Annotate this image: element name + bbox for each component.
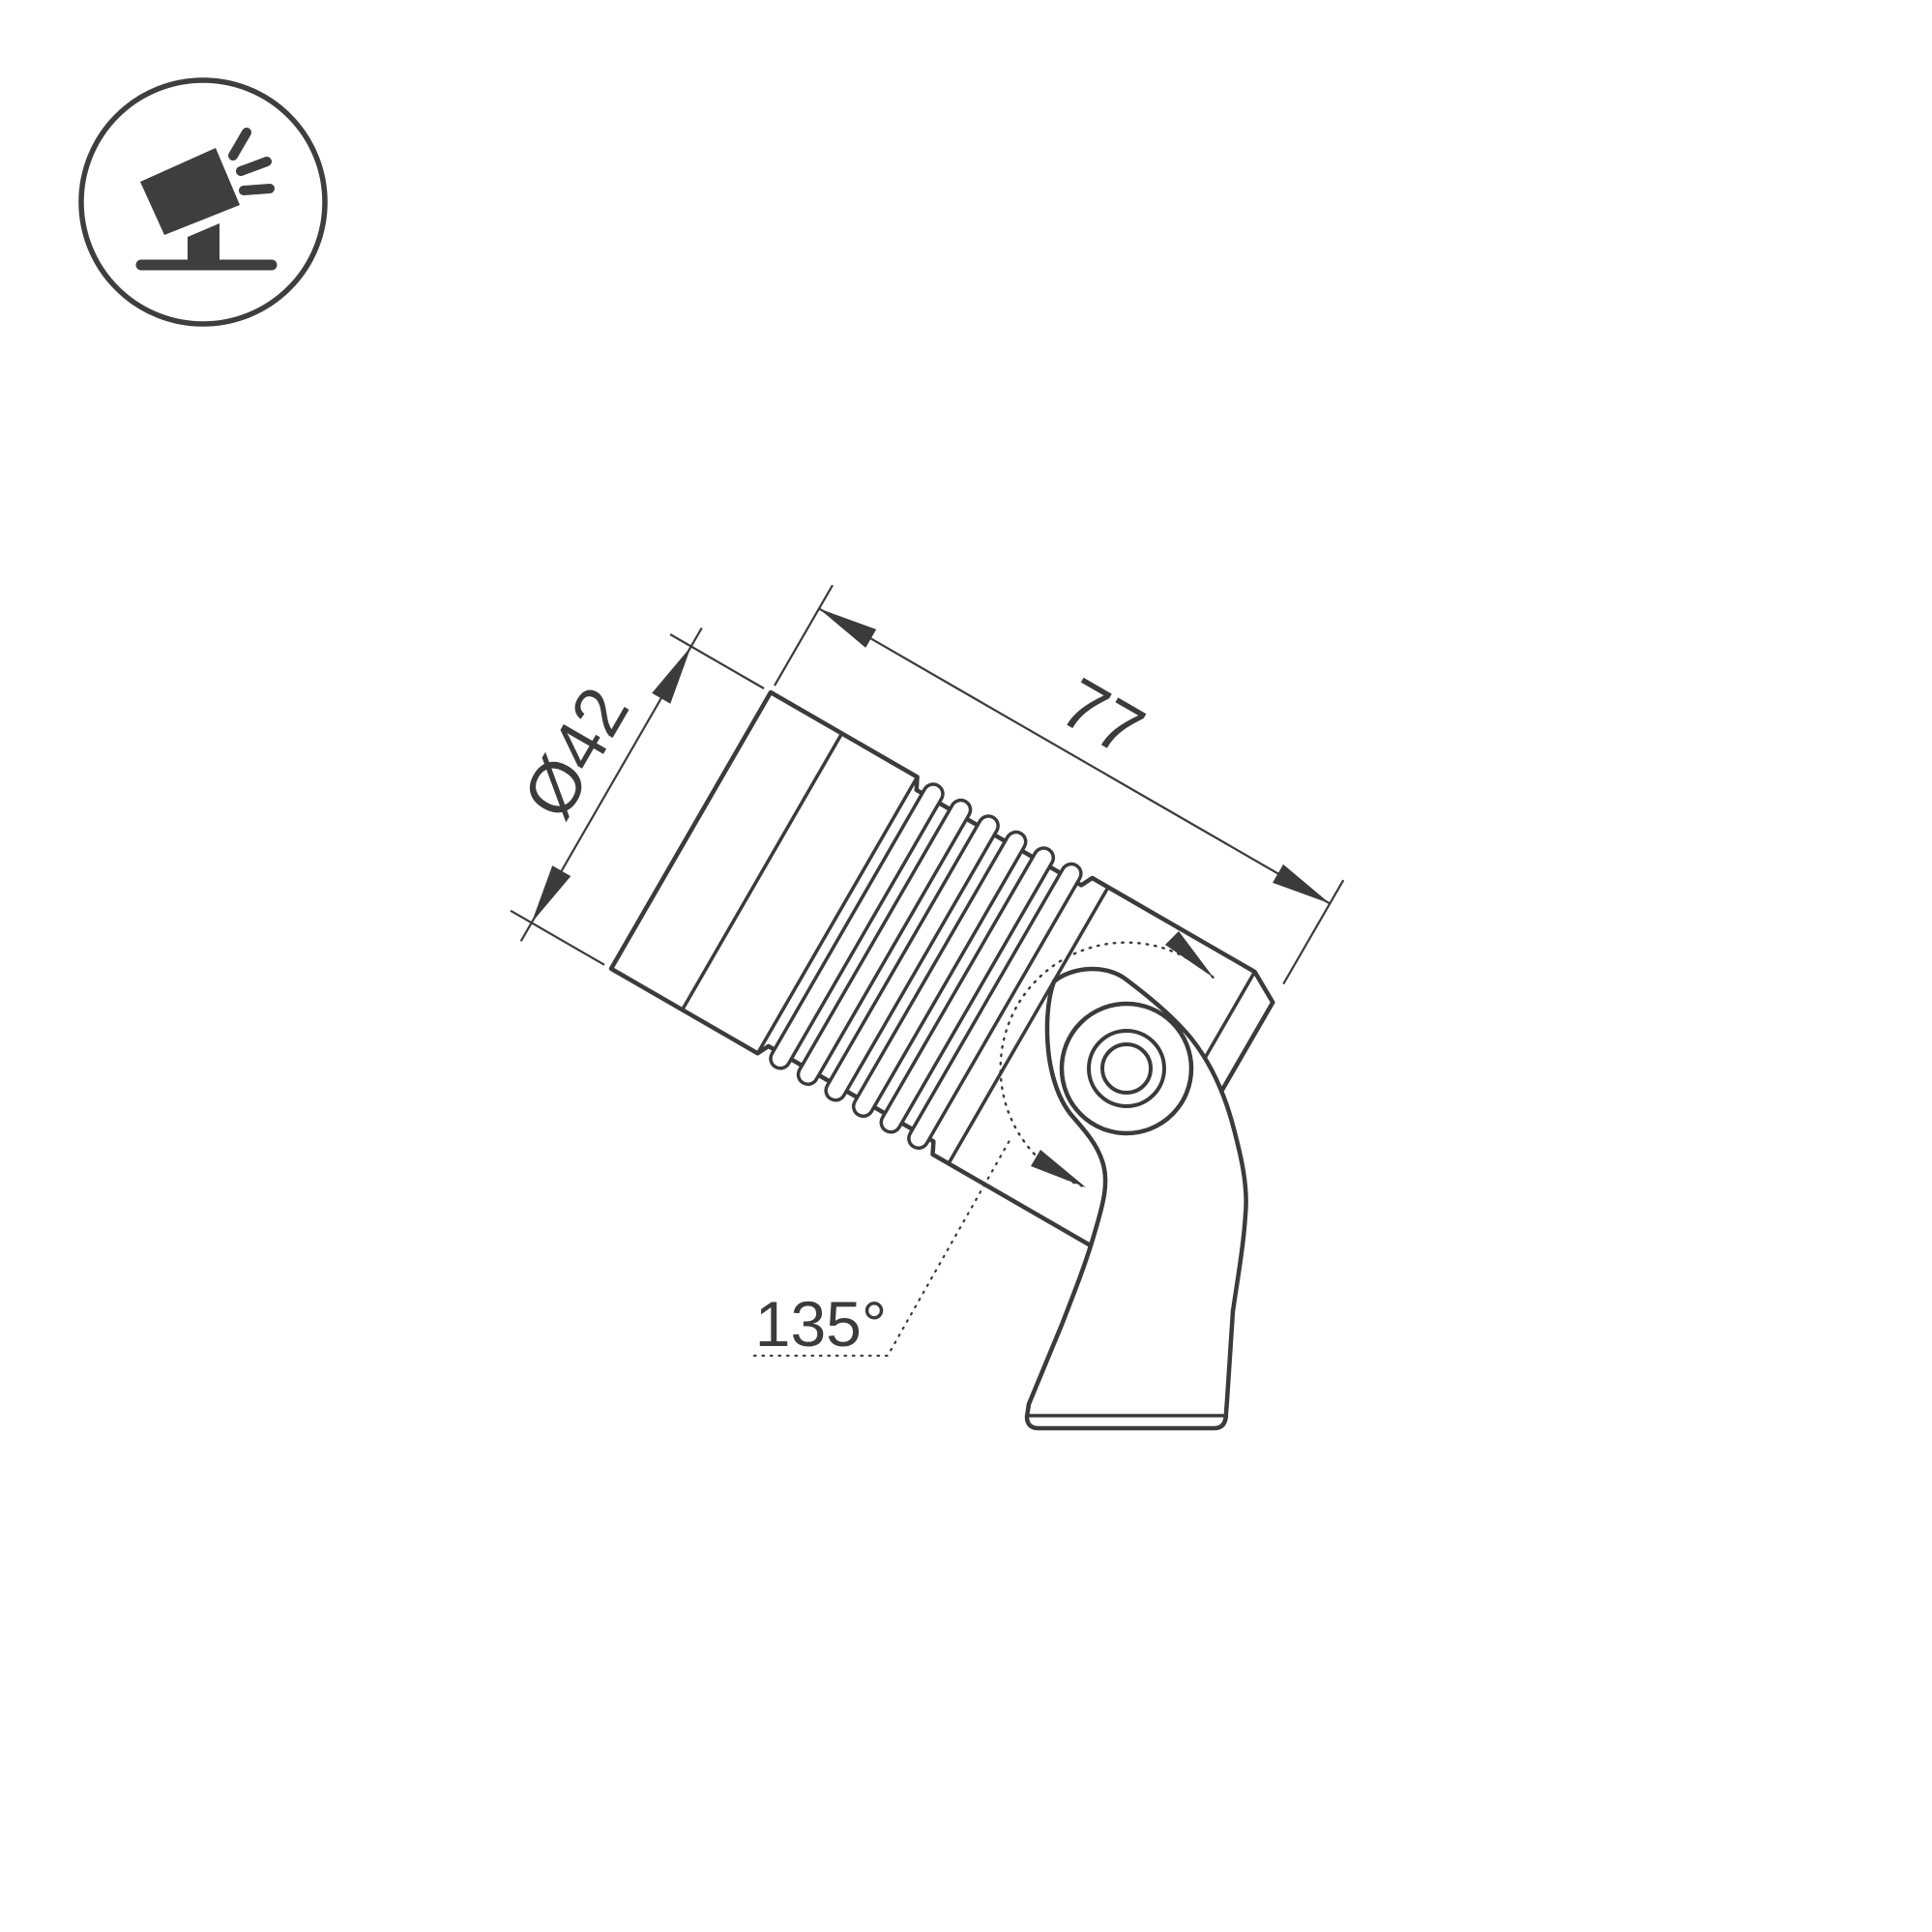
- extension-line: [511, 911, 604, 965]
- pivot-bolt-center: [1102, 1044, 1151, 1093]
- dimension-drawing: Ø42 77 135°: [0, 0, 1932, 1932]
- arrowhead-left: [814, 600, 877, 648]
- arrowhead-up: [652, 641, 700, 704]
- icon-light-rays: [233, 132, 270, 190]
- arrowhead-right: [1273, 864, 1335, 913]
- screenshot-canvas: Ø42 77 135°: [0, 0, 1932, 1932]
- tilted-spotlight-icon: [81, 80, 325, 324]
- length-label: 77: [1048, 662, 1157, 772]
- angle-label: 135°: [755, 1288, 888, 1360]
- arrowhead-down: [522, 865, 571, 928]
- diameter-label: Ø42: [507, 674, 644, 832]
- extension-line: [775, 585, 833, 686]
- icon-stand-stem: [188, 223, 220, 260]
